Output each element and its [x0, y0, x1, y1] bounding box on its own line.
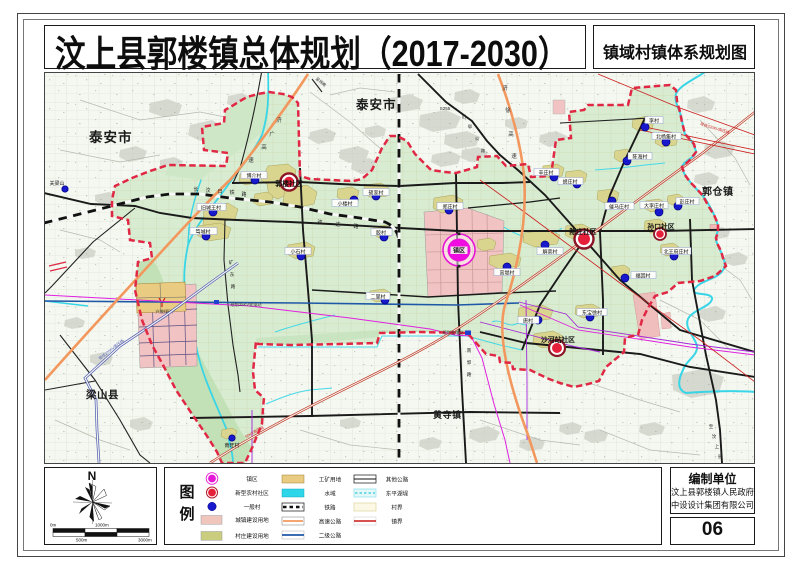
svg-text:彭庄村: 彭庄村: [679, 199, 694, 206]
svg-text:南: 南: [467, 347, 472, 353]
svg-text:村界: 村界: [391, 503, 403, 511]
svg-text:李村: 李村: [649, 118, 659, 125]
svg-text:村庄建设用地: 村庄建设用地: [235, 532, 269, 540]
svg-text:3000m: 3000m: [138, 538, 152, 543]
svg-text:0m: 0m: [50, 523, 57, 528]
svg-text:高: 高: [261, 143, 267, 151]
svg-text:镇区: 镇区: [246, 475, 258, 483]
svg-text:新型农村社区: 新型农村社区: [235, 489, 269, 497]
svg-text:济: 济: [276, 116, 282, 124]
svg-text:笃城村: 笃城村: [195, 229, 210, 236]
svg-text:上: 上: [715, 443, 720, 449]
svg-text:泰安市: 泰安市: [88, 129, 133, 145]
svg-text:东宝徐村: 东宝徐村: [582, 310, 602, 317]
svg-text:小石村: 小石村: [290, 249, 305, 256]
svg-text:徐: 徐: [505, 106, 511, 114]
svg-text:郭: 郭: [467, 359, 472, 366]
svg-text:梁山县: 梁山县: [85, 388, 119, 401]
svg-text:规划变电站: 规划变电站: [443, 329, 464, 336]
svg-text:二里村: 二里村: [370, 294, 385, 301]
svg-text:关梁山: 关梁山: [49, 180, 64, 187]
svg-text:高: 高: [508, 130, 514, 138]
svg-text:南旺村: 南旺村: [224, 442, 239, 449]
svg-text:唐村: 唐村: [523, 318, 533, 325]
svg-text:铁路: 铁路: [324, 503, 336, 511]
svg-text:路: 路: [231, 283, 236, 290]
svg-text:汶: 汶: [712, 433, 717, 440]
svg-text:镇区: 镇区: [453, 247, 465, 255]
svg-text:汶: 汶: [205, 187, 210, 194]
svg-text:博介村: 博介村: [246, 173, 261, 180]
svg-text:长: 长: [193, 186, 198, 193]
svg-text:速: 速: [248, 157, 254, 164]
svg-text:解卖村: 解卖村: [542, 249, 557, 256]
svg-text:济: 济: [502, 84, 508, 92]
svg-text:速: 速: [511, 153, 517, 160]
svg-text:S255: S255: [440, 106, 451, 111]
svg-text:水域: 水域: [324, 489, 336, 497]
svg-text:催马庄村: 催马庄村: [609, 204, 629, 211]
svg-text:N: N: [88, 469, 97, 483]
svg-text:高速公路: 高速公路: [319, 517, 342, 525]
svg-text:至: 至: [709, 424, 714, 429]
svg-text:胡庄村: 胡庄村: [562, 179, 577, 186]
svg-text:福因村: 福因村: [635, 273, 650, 280]
svg-text:旧: 旧: [462, 113, 466, 120]
svg-text:郭仓镇: 郭仓镇: [702, 185, 734, 198]
svg-text:陈庄社区: 陈庄社区: [569, 227, 596, 236]
svg-text:硕家村: 硕家村: [368, 190, 383, 197]
svg-text:达: 达: [335, 221, 340, 228]
svg-text:广: 广: [269, 130, 275, 138]
svg-text:孙口社区: 孙口社区: [647, 222, 674, 231]
svg-text:郓: 郓: [468, 123, 472, 130]
svg-text:北王府庄村: 北王府庄村: [663, 249, 688, 256]
svg-text:工矿用地: 工矿用地: [319, 475, 342, 483]
svg-text:二级公路: 二级公路: [319, 531, 342, 539]
svg-text:旧城王村: 旧城王村: [201, 205, 221, 212]
svg-text:泰安市: 泰安市: [355, 97, 397, 112]
svg-text:大李庄村: 大李庄村: [644, 203, 664, 210]
svg-text:路: 路: [353, 223, 358, 230]
svg-text:北杨集村: 北杨集村: [656, 134, 676, 141]
svg-text:弥: 弥: [317, 219, 322, 226]
svg-text:图: 图: [179, 484, 194, 501]
svg-text:一般村: 一般村: [244, 503, 261, 511]
svg-text:规划35KV变电站: 规划35KV变电站: [230, 301, 261, 308]
svg-text:城镇建设用地: 城镇建设用地: [235, 516, 269, 524]
svg-text:1000m: 1000m: [95, 523, 109, 528]
svg-text:日: 日: [217, 189, 222, 195]
svg-text:东平湖堤: 东平湖堤: [386, 489, 409, 497]
svg-text:矿: 矿: [229, 259, 234, 266]
svg-text:小楼村: 小楼村: [337, 201, 352, 208]
svg-text:高堤村: 高堤村: [499, 270, 514, 277]
svg-text:镇界: 镇界: [391, 517, 403, 525]
svg-text:辛庄村: 辛庄村: [538, 170, 553, 177]
svg-text:铁: 铁: [229, 189, 234, 196]
svg-text:例: 例: [179, 505, 194, 523]
svg-text:胶村: 胶村: [376, 230, 386, 237]
svg-text:沙河站社区: 沙河站社区: [541, 335, 575, 344]
svg-text:陈海村: 陈海村: [632, 154, 647, 161]
svg-text:东: 东: [230, 271, 235, 277]
svg-text:路: 路: [467, 371, 472, 378]
svg-text:郭楼社区: 郭楼社区: [275, 179, 302, 188]
svg-text:其他公路: 其他公路: [386, 475, 409, 483]
svg-text:500m: 500m: [76, 538, 88, 543]
svg-text:路: 路: [241, 191, 246, 198]
svg-text:郑庄村: 郑庄村: [442, 204, 457, 211]
svg-text:黄寺镇: 黄寺镇: [433, 409, 462, 420]
